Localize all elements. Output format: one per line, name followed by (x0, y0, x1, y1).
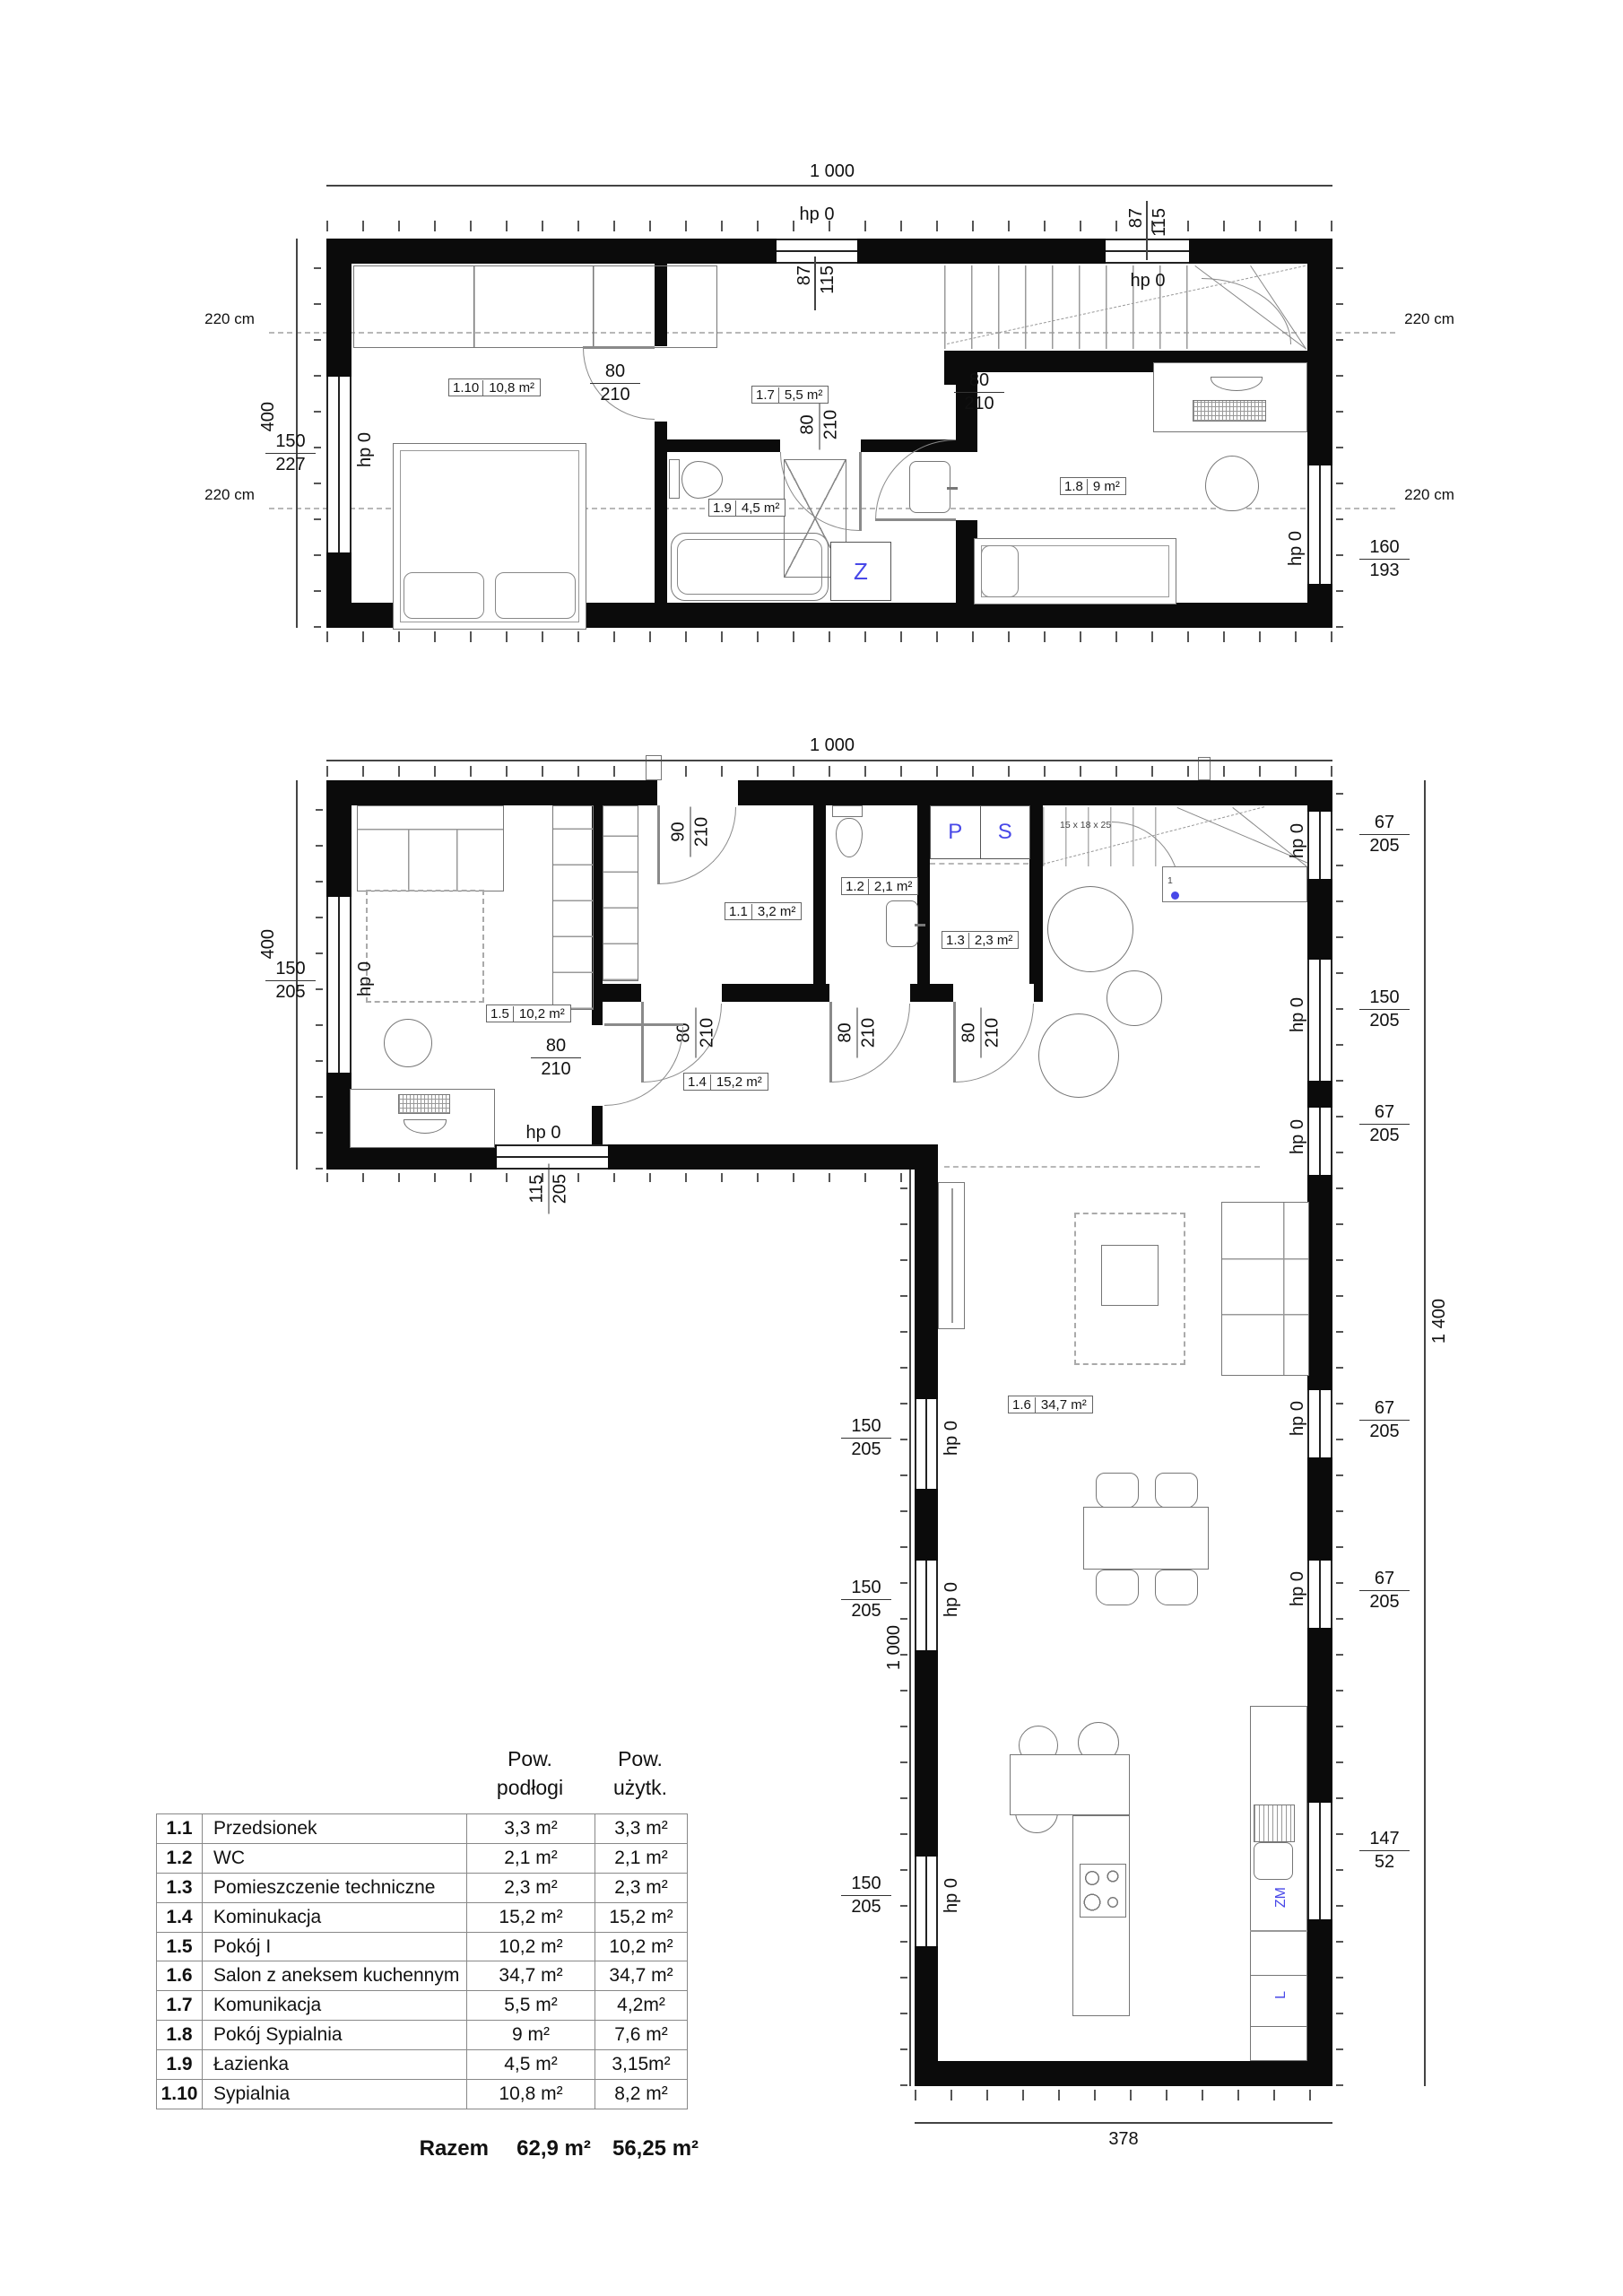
column-header: Pow. (485, 1747, 575, 1771)
stair-walk-line (1202, 278, 1291, 344)
dim-top: 80 (531, 1035, 581, 1058)
pillow (495, 572, 576, 619)
room-area: 5,5 m² (779, 387, 829, 403)
window-size-label: 14752 (1359, 1828, 1410, 1874)
table-row: 1.7Komunikacja5,5 m²4,2m² (157, 1991, 688, 2021)
window-size-label: 150205 (841, 1873, 891, 1918)
exterior-wall (1307, 1919, 1332, 2086)
dim-top: 80 (797, 400, 820, 450)
exterior-wall (326, 780, 657, 805)
window (1307, 465, 1332, 584)
window (915, 1857, 938, 1946)
window-sill-label: hp 0 (1288, 1571, 1308, 1606)
window-size-label: 150205 (841, 1415, 891, 1461)
pillow (404, 572, 484, 619)
window-size: 115 (1150, 208, 1170, 237)
dim-top: 147 (1359, 1828, 1410, 1851)
rug (366, 890, 484, 1003)
cooktop (1080, 1864, 1126, 1918)
exterior-wall (608, 1144, 938, 1170)
dim-top: 67 (1359, 1101, 1410, 1125)
column-header: podłogi (485, 1776, 575, 1800)
table-row: 1.2WC2,1 m²2,1 m² (157, 1843, 688, 1873)
dimension-label: 1 400 (1429, 1299, 1450, 1344)
column-header: użytk. (595, 1776, 685, 1800)
table-row: 1.9Łazienka4,5 m²3,15m² (157, 2050, 688, 2080)
dim-bottom: 210 (691, 807, 714, 857)
stair-spec-label: 15 x 18 x 25 (1060, 820, 1111, 831)
sink-drainboard (1254, 1805, 1295, 1842)
door-size-label: 90210 (668, 807, 714, 857)
interior-wall (1029, 805, 1043, 984)
fridge-label: L (1273, 1991, 1289, 1999)
room-area: 9 m² (1088, 479, 1125, 494)
facade-hatch (1336, 239, 1343, 628)
room-name: Pomieszczenie techniczne (203, 1873, 467, 1902)
dim-top: 150 (265, 958, 316, 981)
dim-top: 150 (265, 430, 316, 454)
floor-area: 34,7 m² (467, 1961, 595, 1991)
dim-bottom: 210 (820, 400, 843, 450)
dim-top: 150 (841, 1873, 891, 1896)
facade-hatch (1336, 780, 1343, 2086)
room-no: 1.10 (157, 2080, 203, 2109)
room-area: 3,2 m² (752, 904, 802, 919)
window-sill-label: hp 0 (1288, 997, 1308, 1032)
ceiling-edge-line (944, 1166, 1260, 1168)
window-sill-label: hp 0 (355, 432, 376, 467)
dimension-label: 1 000 (884, 1625, 905, 1670)
room-number: 1.2 (842, 879, 869, 894)
room-number: 1.1 (725, 904, 752, 919)
floor-area: 10,8 m² (467, 2080, 595, 2109)
floor-area: 9 m² (467, 2021, 595, 2050)
sofa (357, 805, 504, 891)
room-label: 1.13,2 m² (725, 902, 802, 920)
dim-top: 67 (1359, 1397, 1410, 1421)
dim-top: 80 (835, 1008, 858, 1058)
sofa (1221, 1202, 1309, 1376)
counter-divider (1250, 1930, 1307, 1932)
room-area: 4,5 m² (736, 500, 785, 516)
usable-area: 2,3 m² (595, 1873, 688, 1902)
tv-unit (938, 1182, 965, 1329)
door-size-label: 80210 (590, 361, 640, 406)
door-size-label: 80210 (531, 1035, 581, 1081)
room-label: 1.415,2 m² (683, 1073, 768, 1091)
window (1307, 1803, 1332, 1919)
dimension-label: 1 000 (774, 735, 890, 756)
dining-chair (1155, 1473, 1198, 1509)
usable-area: 4,2m² (595, 1991, 688, 2021)
dim-top: 150 (841, 1577, 891, 1600)
room-label: 1.22,1 m² (841, 877, 918, 895)
exterior-wall (326, 239, 352, 377)
window (915, 1399, 938, 1489)
exterior-wall (915, 2061, 1332, 2086)
dimension-line (909, 1170, 911, 2086)
table-row: 1.6Salon z aneksem kuchennym34,7 m²34,7 … (157, 1961, 688, 1991)
exterior-wall (1307, 780, 1332, 812)
floor-area: 10,2 m² (467, 1932, 595, 1961)
dimension-line (915, 2122, 1332, 2124)
interior-wall (917, 805, 930, 984)
room-name: Łazienka (203, 2050, 467, 2080)
table-row: 1.10Sypialnia10,8 m²8,2 m² (157, 2080, 688, 2109)
dimension-line (1146, 201, 1148, 260)
floor-area: 15,2 m² (467, 1902, 595, 1932)
walk-line-end-dot (1171, 891, 1179, 900)
dim-top: 150 (1359, 987, 1410, 1010)
floor-area: 4,5 m² (467, 2050, 595, 2080)
dim-bottom: 205 (1359, 1125, 1410, 1147)
window-size-label: 150205 (265, 958, 316, 1004)
room-label: 1.89 m² (1060, 477, 1126, 495)
window-size-label: 67205 (1359, 1397, 1410, 1443)
room-area: 2,1 m² (869, 879, 918, 894)
dimension-line (326, 185, 1332, 187)
room-name: Komunikacja (203, 1991, 467, 2021)
room-area: 15,2 m² (711, 1074, 768, 1090)
window-size: 115 (818, 265, 838, 294)
stair-over-line (930, 863, 1028, 865)
interior-wall (1034, 984, 1043, 1002)
kitchen-island-bar (1010, 1754, 1130, 1815)
door-swing (604, 1027, 683, 1106)
exterior-wall (857, 239, 1106, 264)
door-size-label: 80210 (959, 1008, 1004, 1058)
level-label: 220 cm (1395, 310, 1463, 328)
dim-bottom: 210 (697, 1008, 719, 1058)
dim-bottom: 210 (982, 1008, 1004, 1058)
table-row: 1.1Przedsionek3,3 m²3,3 m² (157, 1814, 688, 1844)
window-sill-label: hp 0 (1288, 1401, 1308, 1436)
facade-hatch (326, 631, 1332, 642)
dishwasher-label: ZM (1273, 1887, 1289, 1908)
total-usable-area: 56,25 m² (605, 2136, 706, 2161)
wardrobe (353, 265, 717, 348)
exterior-wall (326, 780, 352, 897)
window (1106, 239, 1189, 264)
dryer-letter: S (980, 806, 1030, 858)
window-sill-label: hp 0 (1288, 1119, 1308, 1154)
window (1307, 1108, 1332, 1175)
exterior-wall (326, 552, 352, 628)
window-size-label: 67205 (1359, 1568, 1410, 1613)
room-number: 1.3 (942, 933, 969, 948)
dim-bottom: 205 (1359, 1421, 1410, 1443)
window (1307, 960, 1332, 1081)
dim-bottom: 227 (265, 454, 316, 476)
dim-top: 67 (1359, 812, 1410, 835)
window-sill-label: hp 0 (942, 1582, 962, 1617)
closet-box: Z (830, 542, 891, 601)
usable-area: 2,1 m² (595, 1843, 688, 1873)
room-label: 1.94,5 m² (708, 499, 785, 517)
window-size-label: 67205 (1359, 1101, 1410, 1147)
facade-hatch (915, 2090, 1332, 2100)
room-name: Pokój Sypialnia (203, 2021, 467, 2050)
exterior-wall (915, 1144, 938, 1399)
window-sill-label: hp 0 (355, 961, 376, 996)
window (326, 377, 352, 552)
room-name: Przedsionek (203, 1814, 467, 1844)
toilet-tank (669, 459, 680, 499)
stair-landing (1162, 866, 1307, 902)
room-label: 1.75,5 m² (751, 386, 829, 404)
dim-top: 67 (1359, 1568, 1410, 1591)
column-header: Pow. (595, 1747, 685, 1771)
exterior-wall (1307, 1457, 1332, 1561)
total-floor-area: 62,9 m² (511, 2136, 596, 2161)
dining-chair (1096, 1473, 1139, 1509)
round-plant (1107, 970, 1162, 1026)
room-no: 1.6 (157, 1961, 203, 1991)
window-size-label: 150227 (265, 430, 316, 476)
fridge (1250, 1975, 1307, 2027)
dim-top: 90 (668, 807, 691, 857)
plant-pot (384, 1019, 432, 1067)
window-size: 87 (1126, 208, 1147, 228)
window-size-label: 67205 (1359, 812, 1410, 857)
dim-bottom: 205 (550, 1164, 572, 1214)
room-label: 1.510,2 m² (486, 1004, 571, 1022)
floor-area: 3,3 m² (467, 1814, 595, 1844)
interior-wall (813, 805, 826, 984)
room-no: 1.2 (157, 1843, 203, 1873)
window-sill-label: hp 0 (759, 204, 875, 225)
level-label: 220 cm (195, 486, 264, 504)
door-leaf (859, 452, 862, 531)
dim-bottom: 205 (841, 1896, 891, 1918)
facade-hatch (316, 780, 323, 1170)
interior-wall (910, 984, 953, 1002)
closet-letter: Z (854, 558, 868, 586)
room-name: WC (203, 1843, 467, 1873)
exterior-wall (1307, 879, 1332, 960)
exterior-wall (1307, 1081, 1332, 1108)
washer-dryer-unit: PS (930, 805, 1030, 859)
stair-step-number: 1 (1167, 875, 1173, 886)
dim-bottom: 210 (954, 393, 1004, 415)
kitchen-sink (1254, 1842, 1293, 1880)
interior-wall (667, 439, 780, 452)
room-no: 1.8 (157, 2021, 203, 2050)
dimension-label: 400 (258, 402, 279, 431)
dim-bottom: 205 (265, 981, 316, 1004)
keyboard (398, 1094, 450, 1114)
room-label: 1.634,7 m² (1008, 1396, 1093, 1413)
dining-table (1083, 1507, 1209, 1570)
total-label: Razem (386, 2136, 489, 2161)
usable-area: 15,2 m² (595, 1902, 688, 1932)
exterior-wall (1307, 239, 1332, 465)
exterior-wall (1307, 584, 1332, 628)
dim-top: 150 (841, 1415, 891, 1439)
dim-bottom: 210 (590, 384, 640, 406)
window-sill-label: hp 0 (485, 1123, 602, 1144)
desk (1153, 362, 1307, 432)
table-row: 1.4Kominukacja15,2 m²15,2 m² (157, 1902, 688, 1932)
dim-top: 80 (954, 370, 1004, 393)
floor-area: 5,5 m² (467, 1991, 595, 2021)
exterior-wall (738, 780, 1332, 805)
dimension-line (814, 257, 816, 310)
dim-bottom: 205 (1359, 1591, 1410, 1613)
usable-area: 10,2 m² (595, 1932, 688, 1961)
room-area: 2,3 m² (969, 933, 1019, 948)
dim-bottom: 52 (1359, 1851, 1410, 1874)
room-no: 1.3 (157, 1873, 203, 1902)
window (1307, 1390, 1332, 1457)
usable-area: 34,7 m² (595, 1961, 688, 1991)
level-label: 220 cm (195, 310, 264, 328)
window-size: 87 (794, 265, 815, 285)
pillow (981, 545, 1019, 597)
sink (886, 900, 918, 947)
dim-top: 80 (590, 361, 640, 384)
table-row: 1.3Pomieszczenie techniczne2,3 m²2,3 m² (157, 1873, 688, 1902)
floor-area: 2,3 m² (467, 1873, 595, 1902)
dimension-line (326, 760, 1332, 761)
dim-bottom: 210 (531, 1058, 581, 1081)
toilet (836, 818, 863, 857)
room-name: Pokój I (203, 1932, 467, 1961)
room-area-table: 1.1Przedsionek3,3 m²3,3 m² 1.2WC2,1 m²2,… (156, 1813, 688, 2109)
room-label: 1.1010,8 m² (448, 378, 541, 396)
window-sill-label: hp 0 (942, 1421, 962, 1456)
dim-bottom: 205 (841, 1439, 891, 1461)
door-size-label: 80210 (954, 370, 1004, 415)
office-chair (1205, 456, 1259, 511)
room-number: 1.9 (709, 500, 736, 516)
window (326, 897, 352, 1073)
room-name: Salon z aneksem kuchennym (203, 1961, 467, 1991)
facade-hatch (326, 766, 1332, 777)
dimension-label: 1 000 (774, 161, 890, 182)
room-no: 1.5 (157, 1932, 203, 1961)
table-row: 1.5Pokój I10,2 m²10,2 m² (157, 1932, 688, 1961)
room-no: 1.1 (157, 1814, 203, 1844)
round-plant (1047, 886, 1133, 972)
washer-letter: P (931, 806, 980, 858)
room-no: 1.7 (157, 1991, 203, 2021)
interior-wall (603, 984, 641, 1002)
room-number: 1.5 (487, 1006, 514, 1022)
interior-wall (722, 984, 829, 1002)
usable-area: 7,6 m² (595, 2021, 688, 2050)
room-number: 1.6 (1009, 1397, 1036, 1413)
exterior-wall (1307, 1175, 1332, 1390)
facade-hatch (326, 1173, 938, 1182)
dining-chair (1155, 1570, 1198, 1605)
window (1307, 812, 1332, 879)
window-size-label: 150205 (841, 1577, 891, 1622)
dim-bottom: 193 (1359, 560, 1410, 582)
door-leaf (604, 1023, 683, 1026)
room-name: Sypialnia (203, 2080, 467, 2109)
dim-top: 115 (526, 1164, 550, 1214)
exterior-wall (326, 239, 777, 264)
window (915, 1561, 938, 1650)
window-sill-label: hp 0 (942, 1878, 962, 1913)
floor-area: 2,1 m² (467, 1843, 595, 1873)
dimension-label: 400 (258, 929, 279, 959)
window-size-label: 115205 (526, 1164, 572, 1214)
dim-bottom: 205 (1359, 1010, 1410, 1032)
room-number: 1.4 (684, 1074, 711, 1090)
room-area: 34,7 m² (1036, 1397, 1092, 1413)
exterior-wall (915, 1489, 938, 1561)
door-size-label: 80210 (835, 1008, 881, 1058)
exterior-wall (326, 1144, 497, 1170)
dim-bottom: 205 (1359, 835, 1410, 857)
room-area: 10,2 m² (514, 1006, 570, 1022)
room-area: 10,8 m² (483, 380, 540, 396)
table-row: 1.8Pokój Sypialnia9 m²7,6 m² (157, 2021, 688, 2050)
level-label: 220 cm (1395, 486, 1463, 504)
room-number: 1.8 (1061, 479, 1088, 494)
room-name: Kominukacja (203, 1902, 467, 1932)
window-size-label: 150205 (1359, 987, 1410, 1032)
keyboard (1193, 400, 1266, 422)
room-no: 1.4 (157, 1902, 203, 1932)
exterior-wall (1307, 1628, 1332, 1803)
dining-chair (1096, 1570, 1139, 1605)
window-sill-label: hp 0 (1286, 531, 1306, 566)
usable-area: 8,2 m² (595, 2080, 688, 2109)
usable-area: 3,3 m² (595, 1814, 688, 1844)
round-plant (1038, 1013, 1119, 1098)
wardrobe-shelves (552, 805, 594, 1010)
dim-top: 160 (1359, 536, 1410, 560)
toilet-tank (832, 805, 863, 817)
dimension-label: 378 (1065, 2129, 1182, 2150)
window (777, 239, 857, 264)
window-sill-label: hp 0 (1288, 823, 1308, 858)
window-size-label: 160193 (1359, 536, 1410, 582)
room-number: 1.7 (752, 387, 779, 403)
dim-bottom: 205 (841, 1600, 891, 1622)
wardrobe-shelves (603, 805, 638, 981)
window-sill-label: hp 0 (1089, 271, 1206, 291)
room-label: 1.32,3 m² (942, 931, 1019, 949)
door-size-label: 80210 (797, 400, 843, 450)
coffee-table (1101, 1245, 1159, 1306)
usable-area: 3,15m² (595, 2050, 688, 2080)
room-no: 1.9 (157, 2050, 203, 2080)
dim-top: 80 (959, 1008, 982, 1058)
window (1307, 1561, 1332, 1628)
dim-bottom: 210 (858, 1008, 881, 1058)
floor-plan-sheet: Z 1 000 400 220 cm 220 cm 220 cm 220 cm … (0, 0, 1623, 2296)
dimension-line (1424, 780, 1426, 2086)
interior-wall (655, 422, 667, 603)
toilet (681, 461, 723, 499)
room-number: 1.10 (449, 380, 483, 396)
exterior-wall (915, 1650, 938, 1857)
